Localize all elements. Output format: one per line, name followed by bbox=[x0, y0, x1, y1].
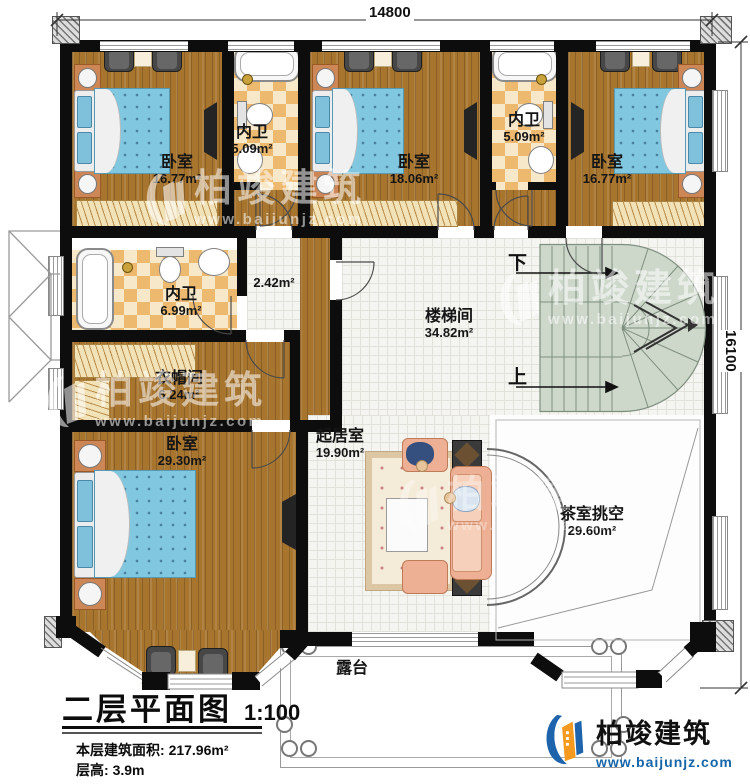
window bbox=[48, 256, 64, 316]
plan-title-block: 二层平面图1:100 bbox=[62, 684, 300, 729]
tv-icon bbox=[282, 494, 296, 550]
bed-pillow bbox=[77, 96, 92, 128]
toilet-bowl bbox=[159, 256, 181, 283]
company-name: 柏竣建筑 bbox=[596, 712, 733, 751]
wardrobe bbox=[612, 201, 706, 228]
nightstand bbox=[312, 170, 339, 198]
window bbox=[322, 41, 440, 51]
window bbox=[490, 41, 554, 51]
armchair bbox=[402, 560, 448, 594]
wall-partition bbox=[556, 52, 568, 226]
bed-pillow bbox=[688, 96, 703, 128]
wall-partition bbox=[310, 226, 438, 238]
room-label-bedroom-top-right: 卧室 16.77m² bbox=[583, 154, 631, 187]
tv-icon bbox=[464, 102, 477, 160]
wall-partition bbox=[60, 226, 256, 238]
room-label-living-room: 起居室 19.90m² bbox=[316, 428, 364, 461]
plan-title: 二层平面图 bbox=[62, 684, 232, 729]
bed-pillow bbox=[77, 132, 92, 164]
company-url: www.baijunjz.com bbox=[596, 754, 733, 770]
bed-pillow bbox=[77, 480, 93, 522]
wall-bath-stub bbox=[234, 182, 260, 190]
nightstand bbox=[74, 440, 106, 472]
window bbox=[596, 41, 690, 51]
window bbox=[48, 368, 64, 410]
room-label-tea-room-void: 茶室挑空 29.60m² bbox=[560, 506, 624, 539]
person-figure-head bbox=[444, 492, 456, 504]
wall-partition bbox=[298, 52, 310, 226]
room-label-bath-mid: 内卫 6.99m² bbox=[160, 286, 201, 319]
wall-bath-stub bbox=[492, 182, 496, 190]
window bbox=[712, 90, 728, 172]
wardrobe bbox=[76, 200, 218, 227]
clothes-rack bbox=[74, 380, 110, 424]
wall-living-south bbox=[283, 632, 352, 646]
room-label-bedroom-top-left: 卧室 16.77m² bbox=[153, 154, 201, 187]
corner-pier bbox=[700, 16, 732, 44]
floor-height-line: 层高: 3.9m bbox=[76, 760, 144, 780]
company-logo-icon bbox=[540, 712, 588, 766]
floor-plan-canvas: 卧室 16.77m² 内卫 5.09m² 卧室 18.06m² 内卫 5.09m… bbox=[0, 0, 750, 784]
railing-post bbox=[610, 638, 627, 655]
bathtub bbox=[76, 248, 114, 330]
wardrobe bbox=[312, 200, 458, 227]
window-terrace-door bbox=[352, 633, 478, 644]
sofa-cushion bbox=[452, 524, 482, 572]
bed-pillow bbox=[77, 526, 93, 568]
sink bbox=[528, 146, 554, 174]
nightstand bbox=[74, 170, 101, 198]
wall-partition bbox=[602, 226, 716, 238]
room-label-bedroom-top-mid: 卧室 18.06m² bbox=[390, 154, 438, 187]
window bbox=[712, 516, 728, 610]
bay-window-chair bbox=[146, 646, 176, 676]
wall-partition bbox=[296, 432, 308, 632]
coffee-table bbox=[386, 498, 428, 552]
bed-pillow bbox=[315, 132, 330, 164]
sink bbox=[198, 248, 230, 276]
stair-down-label: 下 bbox=[508, 248, 527, 275]
window bbox=[228, 41, 294, 51]
shower-knob-icon bbox=[536, 74, 547, 85]
corner-pier bbox=[702, 620, 734, 652]
bed-mattress bbox=[94, 470, 196, 578]
wall-living-south bbox=[478, 632, 534, 646]
corner-pier bbox=[52, 16, 80, 44]
nightstand bbox=[74, 578, 106, 610]
bath-top-right-vestibule-floor bbox=[492, 190, 556, 226]
shower-knob-icon bbox=[242, 74, 253, 85]
wall-partition bbox=[474, 226, 494, 238]
person-figure-head bbox=[416, 460, 428, 472]
railing-post bbox=[591, 638, 608, 655]
room-label-bath-top-left: 内卫 5.09m² bbox=[231, 124, 272, 157]
person-figure bbox=[452, 486, 480, 512]
bed-pillow bbox=[688, 132, 703, 164]
corner-pier bbox=[44, 616, 62, 648]
hallway-floor bbox=[300, 238, 330, 432]
room-label-bath-top-right: 内卫 5.09m² bbox=[503, 112, 544, 145]
bed-pillow bbox=[315, 96, 330, 128]
room-label-cloakroom: 衣帽间 6.24m² bbox=[155, 370, 203, 403]
wall-partition bbox=[480, 52, 492, 226]
wall-partition bbox=[290, 342, 300, 420]
title-underline-2 bbox=[62, 732, 262, 734]
nightstand bbox=[678, 170, 706, 198]
bay-window-table bbox=[178, 650, 196, 672]
room-label-bedroom-master: 卧室 29.30m² bbox=[158, 436, 206, 469]
dimension-right: 16100 bbox=[719, 330, 742, 372]
room-label-hall: 2.42m² bbox=[253, 276, 294, 291]
bath-top-left-vestibule-floor bbox=[234, 190, 298, 226]
tv-icon bbox=[204, 102, 217, 160]
railing-post bbox=[281, 740, 298, 757]
room-label-terrace: 露台 bbox=[336, 660, 368, 678]
wall-partition bbox=[60, 330, 246, 342]
title-underline bbox=[62, 726, 262, 729]
wall-partition bbox=[60, 420, 252, 432]
stair-up-label: 上 bbox=[508, 362, 527, 389]
dimension-top: 14800 bbox=[366, 4, 414, 21]
shower-knob-icon bbox=[122, 262, 133, 273]
wall-partition bbox=[330, 238, 342, 260]
wall-bath-stub bbox=[528, 182, 556, 190]
bay-window-chair bbox=[198, 648, 228, 678]
wall-partition bbox=[330, 300, 342, 432]
window bbox=[100, 41, 188, 51]
plan-scale: 1:100 bbox=[244, 700, 300, 725]
railing-post bbox=[300, 740, 317, 757]
wall-partition bbox=[292, 226, 310, 238]
floor-area-line: 本层建筑面积: 217.96m² bbox=[76, 740, 229, 760]
wall-partition bbox=[237, 238, 247, 296]
company-logo: 柏竣建筑 www.baijunjz.com bbox=[540, 712, 733, 770]
wall-partition bbox=[528, 226, 566, 238]
tv-icon bbox=[571, 102, 584, 160]
room-label-stairwell: 楼梯间 34.82m² bbox=[425, 308, 473, 341]
wall-partition bbox=[284, 330, 300, 342]
